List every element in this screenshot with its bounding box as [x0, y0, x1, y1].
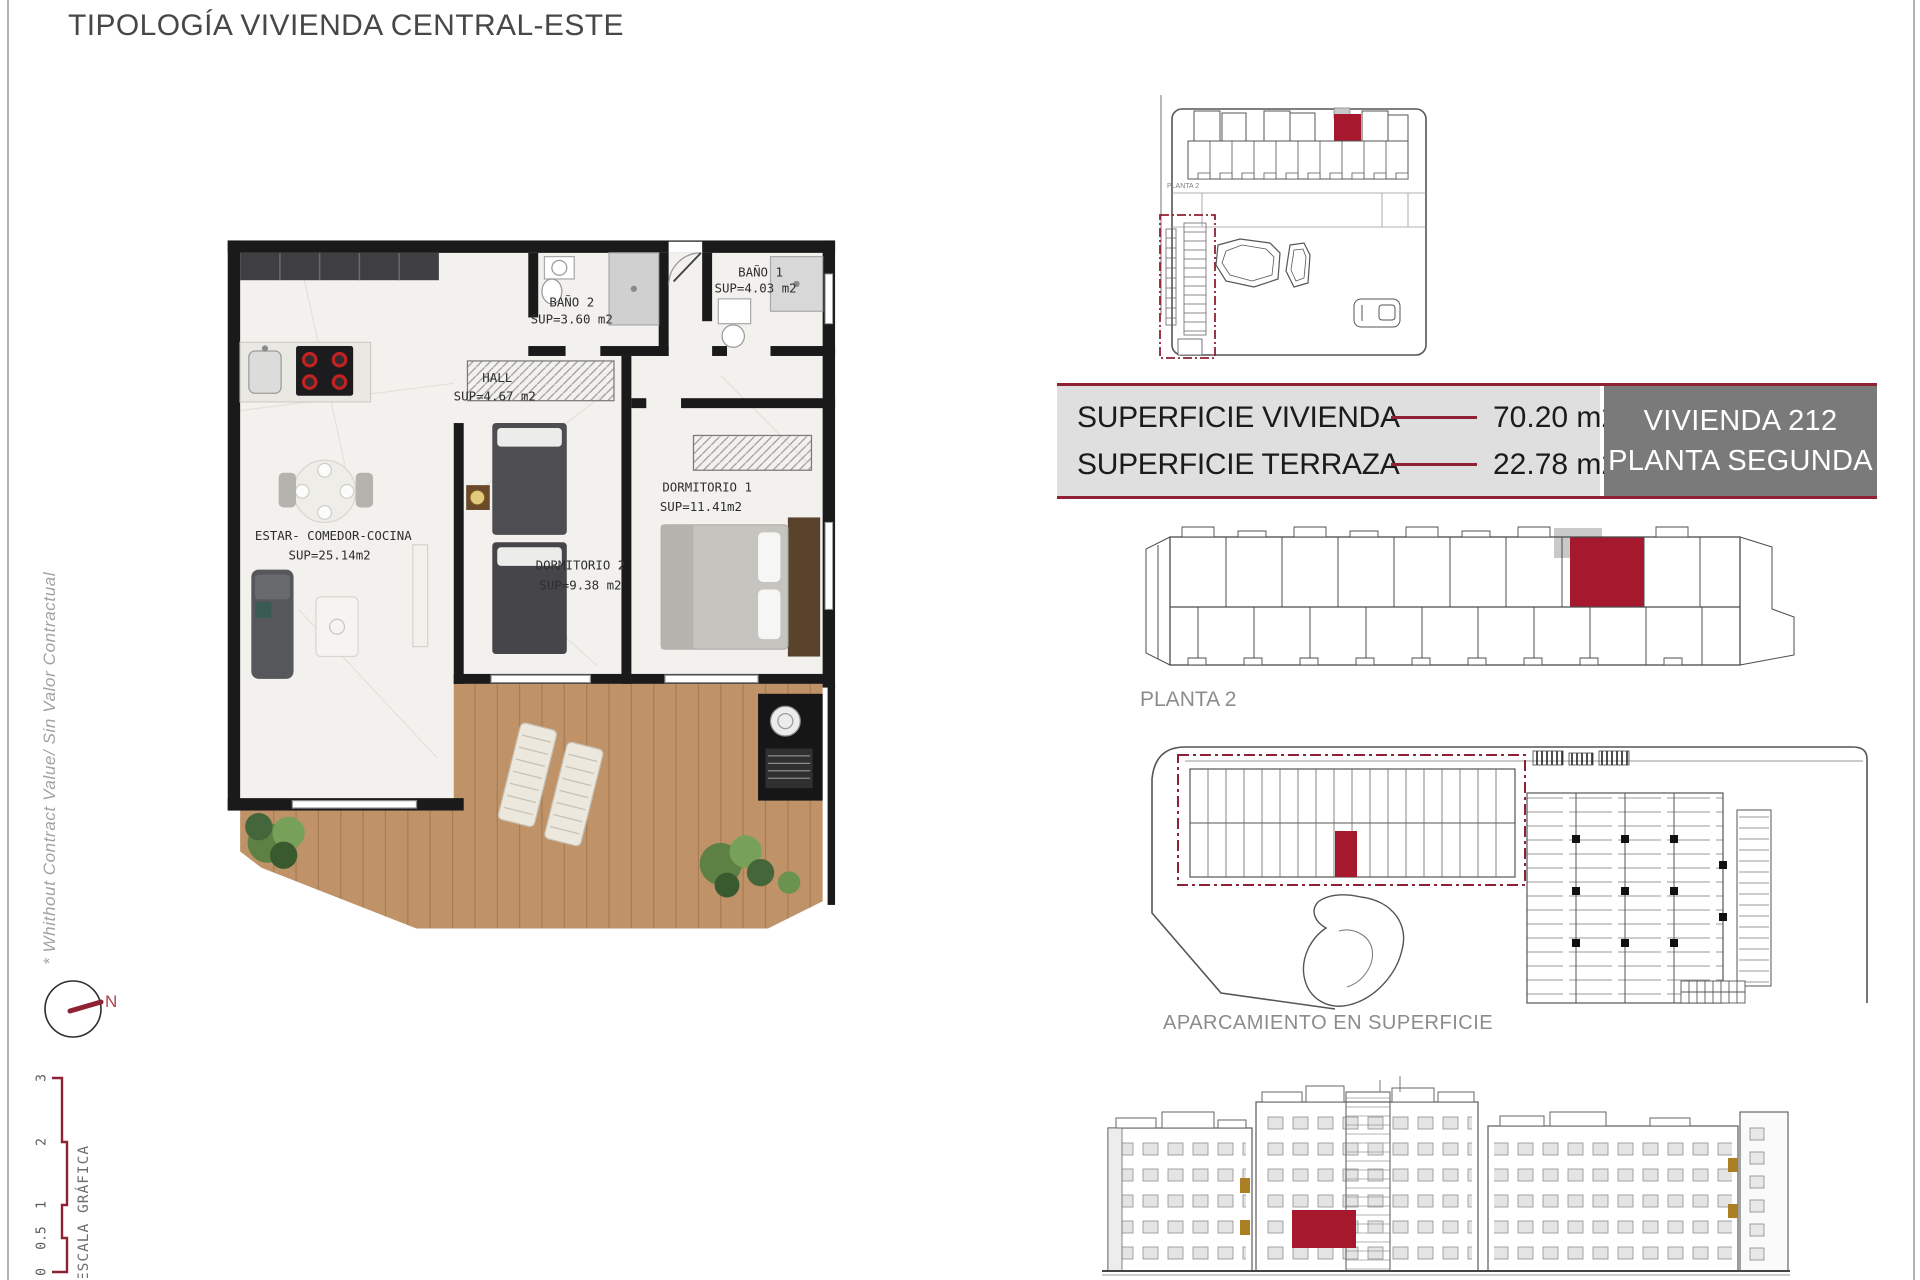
- strip-outline: [1146, 537, 1794, 665]
- ground-line: [1102, 1271, 1790, 1275]
- scale-tick: 1: [35, 1201, 50, 1209]
- parking-plan: [1125, 735, 1870, 1013]
- plan-sheet: TIPOLOGÍA VIVIENDA CENTRAL-ESTE * Whitho…: [0, 0, 1920, 1280]
- disclaimer-note: * Whithout Contract Value/ Sin Valor Con…: [40, 555, 60, 965]
- room-label-dorm2: DORMITORIO 2: [536, 558, 626, 573]
- elevation-center-block: [1256, 1076, 1478, 1271]
- room-label-hall: HALL: [482, 370, 512, 385]
- summary-table: SUPERFICIE VIVIENDA 70.20 m2 SUPERFICIE …: [1057, 383, 1877, 499]
- room-label-dorm1: DORMITORIO 1: [662, 479, 752, 494]
- room-area-bano2: SUP=3.60 m2: [531, 312, 613, 327]
- parking-structure-grid: [1527, 751, 1771, 1003]
- room-area-bano1: SUP=4.03 m2: [714, 281, 796, 296]
- room-area-dorm2: SUP=9.38 m2: [539, 577, 621, 592]
- compass-north-label: N: [105, 992, 117, 1011]
- graphic-scale-bar: 3 2 1 0.5 0 ESCALA GRÁFICA: [18, 1063, 128, 1278]
- elevation-right-block: [1488, 1112, 1788, 1271]
- highlighted-unit: [1334, 114, 1361, 143]
- room-area-hall: SUP=4.67 m2: [454, 389, 536, 404]
- compass-icon: N: [30, 965, 140, 1055]
- page-border-left: [7, 0, 9, 1280]
- parking-caption: APARCAMIENTO EN SUPERFICIE: [1163, 1012, 1493, 1035]
- unit-box: VIVIENDA 212 PLANTA SEGUNDA: [1604, 386, 1877, 496]
- summary-areas: SUPERFICIE VIVIENDA 70.20 m2 SUPERFICIE …: [1057, 386, 1600, 496]
- keyplan-floor-label: PLANTA 2: [1167, 183, 1199, 190]
- room-label-bano1: BAÑO 1: [738, 264, 783, 279]
- summary-value: 70.20 m2: [1493, 401, 1618, 435]
- scale-tick: 3: [35, 1074, 50, 1082]
- room-label-bano2: BAÑO 2: [549, 294, 594, 309]
- unit-number: VIVIENDA 212: [1604, 401, 1877, 441]
- connector-line: [1391, 416, 1477, 419]
- room-label-estar: ESTAR- COMEDOR-COCINA: [255, 528, 412, 543]
- summary-row-vivienda: SUPERFICIE VIVIENDA 70.20 m2: [1077, 401, 1586, 435]
- highlighted-unit: [1292, 1210, 1356, 1248]
- summary-value: 22.78 m2: [1493, 448, 1618, 482]
- scale-tick: 0: [35, 1268, 50, 1276]
- apartment-floorplan: BAÑO 1 SUP=4.03 m2 BAÑO 2 SUP=3.60 m2 HA…: [224, 236, 845, 933]
- elevation-left-block: [1108, 1112, 1252, 1271]
- planta2-strip-plan: [1130, 515, 1810, 685]
- scale-tick: 0.5: [35, 1226, 50, 1249]
- building-elevation: [1090, 1058, 1800, 1280]
- page-border-right: [1913, 0, 1915, 1280]
- room-area-estar: SUP=25.14m2: [288, 548, 370, 563]
- landscape-blob: [1303, 895, 1403, 1006]
- parking-stall-band: [1190, 769, 1515, 877]
- site-keyplan: PLANTA 2: [1158, 93, 1458, 373]
- connector-line: [1391, 463, 1477, 466]
- summary-label: SUPERFICIE VIVIENDA: [1077, 401, 1391, 435]
- room-area-dorm1: SUP=11.41m2: [660, 499, 742, 514]
- page-title: TIPOLOGÍA VIVIENDA CENTRAL-ESTE: [68, 9, 624, 43]
- unit-floor: PLANTA SEGUNDA: [1604, 441, 1877, 481]
- scale-tick: 2: [35, 1138, 50, 1146]
- highlighted-parking-stall: [1335, 831, 1357, 877]
- highlighted-unit: [1570, 537, 1644, 607]
- summary-label: SUPERFICIE TERRAZA: [1077, 448, 1391, 482]
- planta2-caption: PLANTA 2: [1140, 688, 1237, 712]
- summary-row-terraza: SUPERFICIE TERRAZA 22.78 m2: [1077, 448, 1586, 482]
- scale-label: ESCALA GRÁFICA: [75, 1145, 92, 1278]
